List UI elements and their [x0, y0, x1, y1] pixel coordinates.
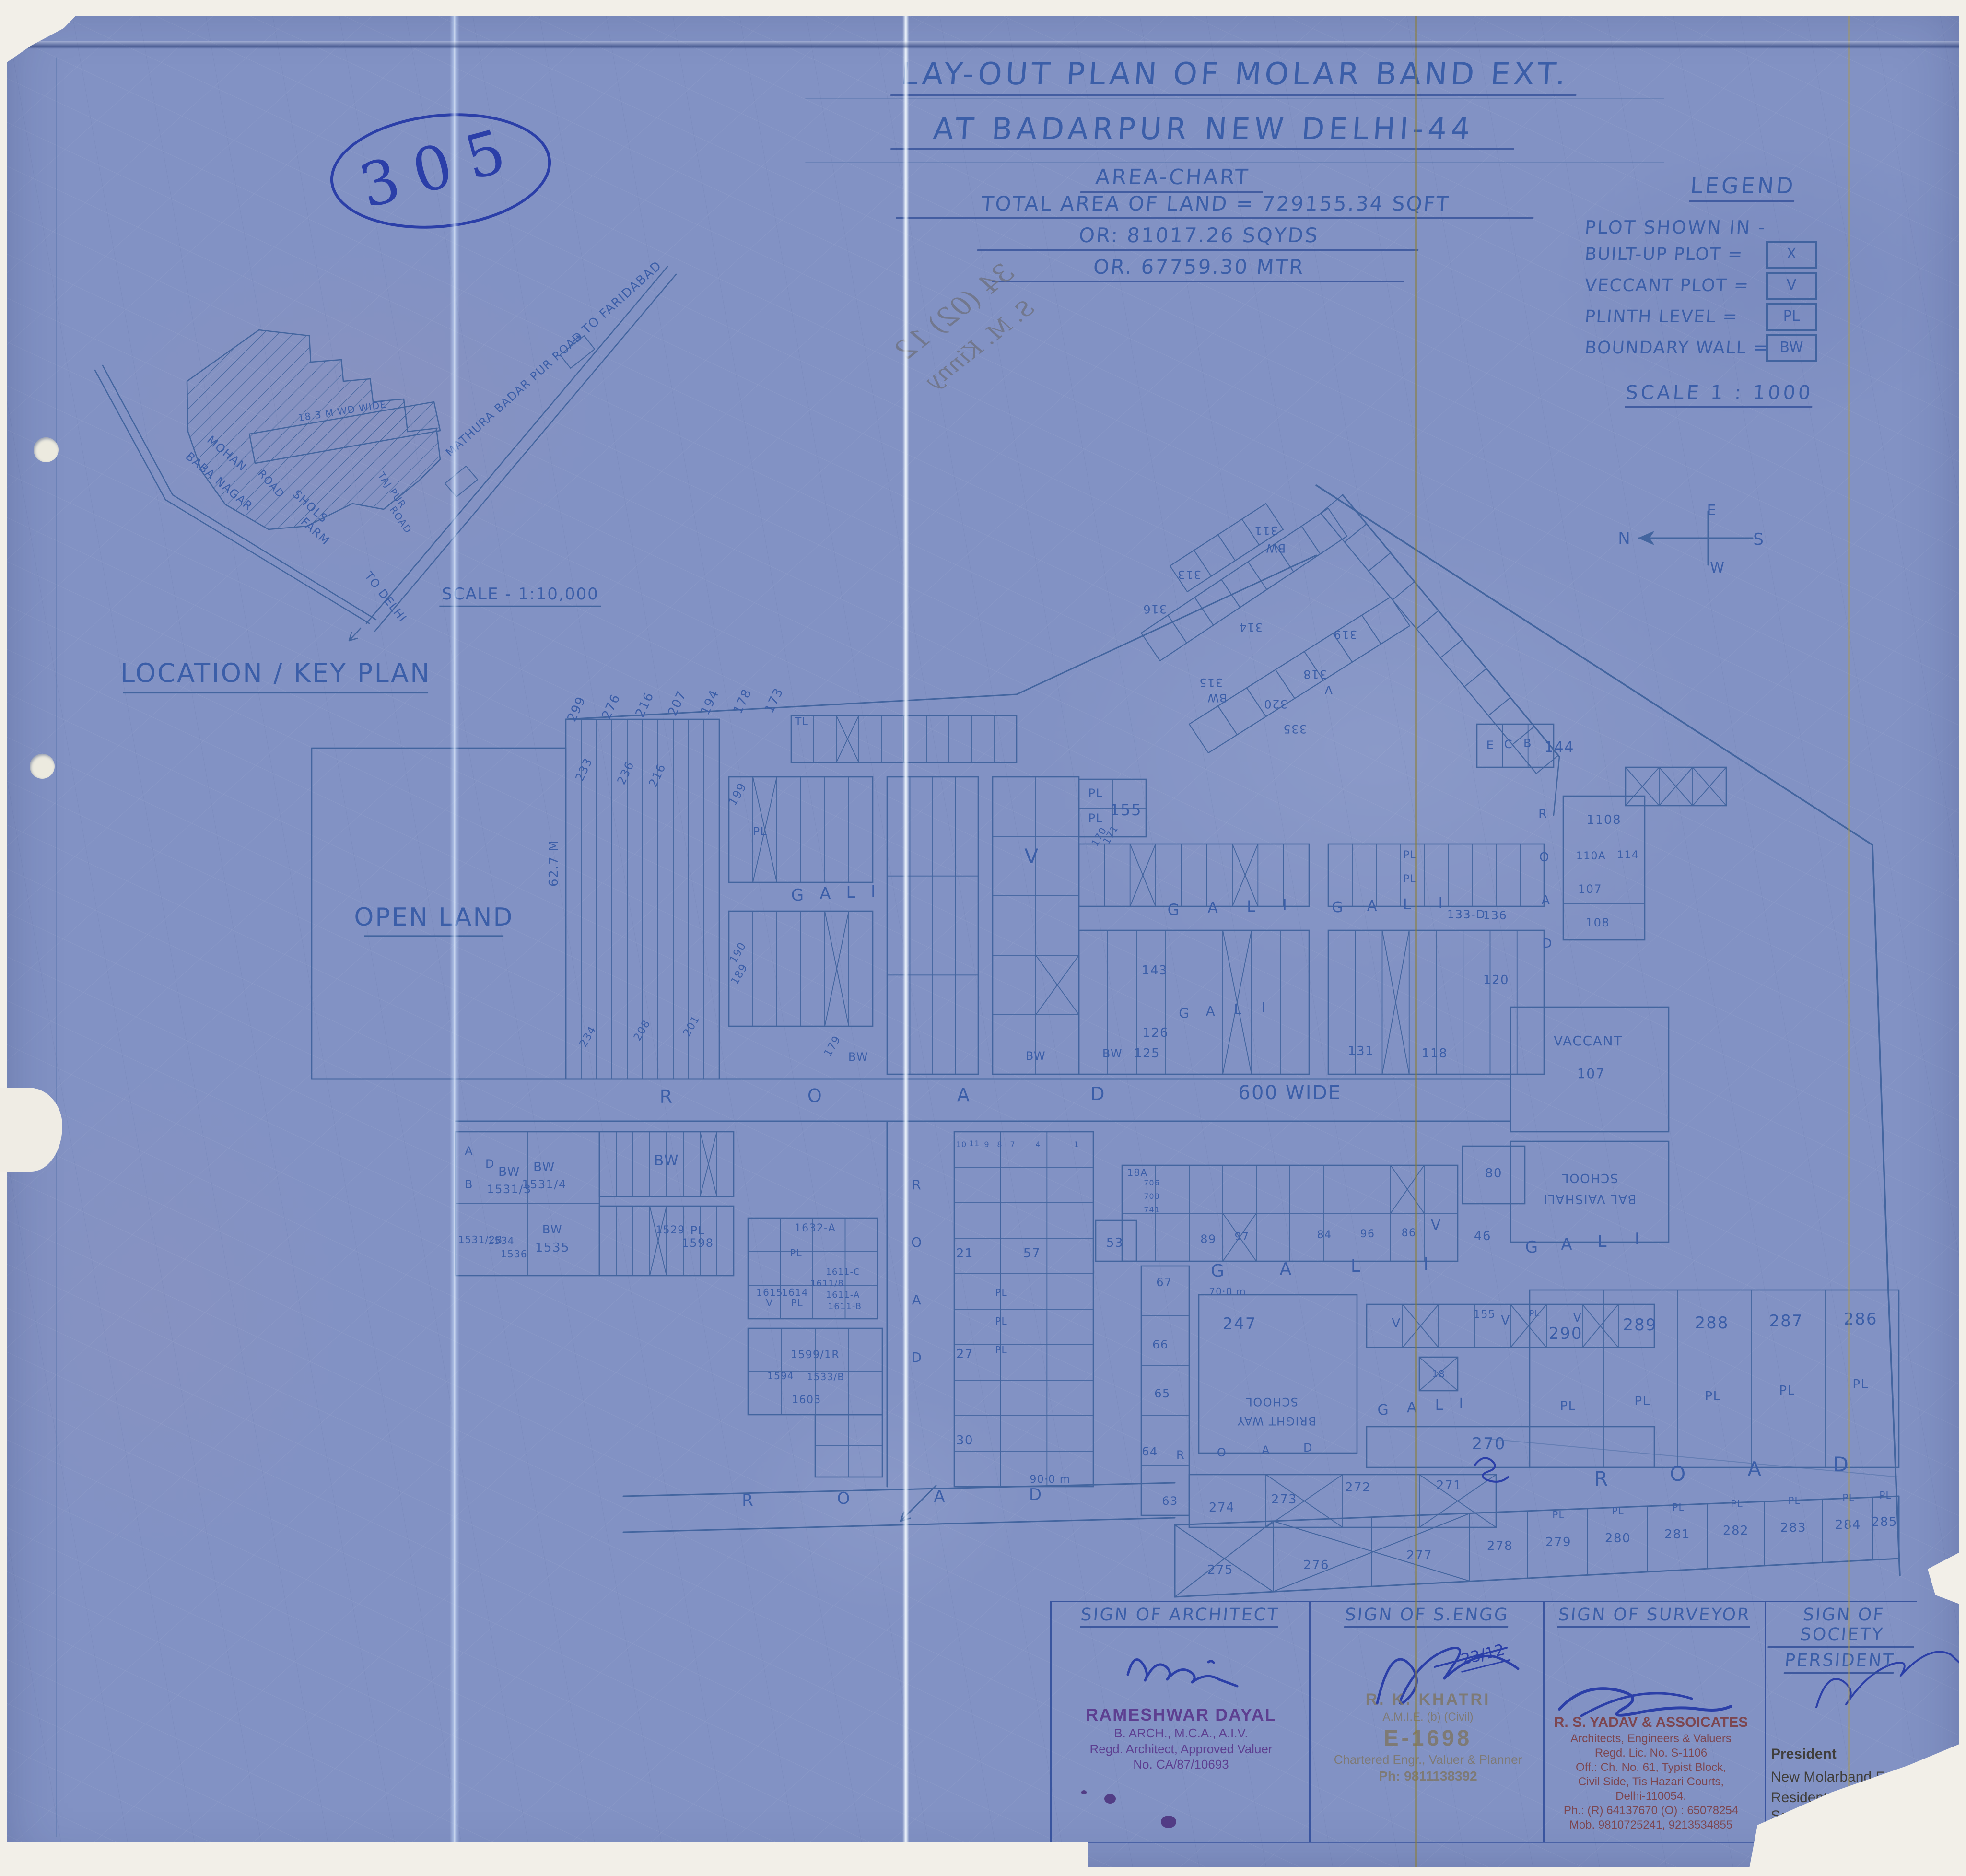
- ink-blob: [1161, 1816, 1176, 1828]
- svg-text:201: 201: [681, 1014, 702, 1039]
- svg-text:D: D: [1833, 1453, 1850, 1476]
- svg-text:194: 194: [698, 688, 722, 717]
- svg-text:D: D: [1029, 1485, 1042, 1504]
- svg-text:A: A: [1207, 899, 1219, 917]
- svg-text:272: 272: [1345, 1480, 1371, 1495]
- svg-text:PL: PL: [995, 1287, 1007, 1298]
- svg-text:O: O: [807, 1085, 823, 1106]
- svg-text:O: O: [1217, 1446, 1227, 1459]
- svg-text:E: E: [1707, 502, 1717, 519]
- svg-text:PL: PL: [1731, 1498, 1743, 1510]
- svg-text:80: 80: [1485, 1166, 1502, 1181]
- svg-text:1108: 1108: [1587, 813, 1621, 827]
- svg-text:287: 287: [1769, 1312, 1803, 1331]
- svg-text:BAL VAISHALI: BAL VAISHALI: [1543, 1192, 1637, 1206]
- svg-text:PL: PL: [690, 1224, 705, 1237]
- svg-text:600 WIDE: 600 WIDE: [1238, 1082, 1342, 1104]
- svg-text:PL: PL: [1852, 1377, 1868, 1392]
- svg-text:319: 319: [1333, 628, 1357, 641]
- svg-text:PL: PL: [1612, 1505, 1624, 1517]
- svg-text:PL: PL: [1788, 1495, 1801, 1506]
- svg-text:335: 335: [1283, 722, 1307, 736]
- svg-text:86: 86: [1402, 1227, 1416, 1239]
- architect-stamp: RAMESHWAR DAYAL B. ARCH., M.C.A., A.I.V.…: [1068, 1704, 1294, 1772]
- legend-symbol-plinth: PL: [1766, 303, 1817, 331]
- svg-text:BW: BW: [533, 1160, 555, 1174]
- svg-text:O: O: [1539, 850, 1550, 865]
- svg-text:PL: PL: [1879, 1489, 1892, 1501]
- svg-text:108: 108: [1586, 916, 1610, 929]
- svg-text:S: S: [1753, 530, 1765, 549]
- svg-text:V: V: [1024, 844, 1039, 868]
- svg-text:PL: PL: [1560, 1399, 1576, 1413]
- table-divider-3: [1765, 1602, 1766, 1842]
- svg-text:R: R: [1538, 807, 1548, 821]
- svg-text:O: O: [837, 1489, 851, 1508]
- svg-text:PL: PL: [995, 1315, 1007, 1327]
- svg-text:90·0 m: 90·0 m: [1030, 1474, 1070, 1486]
- svg-text:9: 9: [984, 1140, 989, 1149]
- svg-text:PL: PL: [1634, 1394, 1650, 1408]
- svg-text:R: R: [1176, 1448, 1185, 1462]
- svg-text:OPEN LAND: OPEN LAND: [354, 903, 514, 932]
- svg-text:120: 120: [1483, 973, 1509, 987]
- svg-text:136: 136: [1483, 909, 1507, 922]
- svg-text:TO DELHI: TO DELHI: [362, 569, 410, 624]
- svg-text:I: I: [1635, 1230, 1640, 1249]
- svg-text:208: 208: [632, 1018, 653, 1043]
- svg-text:1632-A: 1632-A: [795, 1222, 836, 1234]
- svg-text:BW: BW: [1207, 691, 1227, 704]
- svg-text:281: 281: [1664, 1527, 1690, 1542]
- legend-symbol-vacant: V: [1766, 272, 1817, 300]
- svg-text:286: 286: [1843, 1310, 1877, 1329]
- svg-text:V: V: [1324, 683, 1333, 696]
- svg-text:178: 178: [731, 687, 755, 716]
- svg-text:173: 173: [762, 686, 786, 715]
- svg-text:1611-A: 1611-A: [826, 1290, 860, 1300]
- svg-text:706: 706: [1144, 1178, 1160, 1187]
- svg-text:BW: BW: [654, 1152, 679, 1169]
- area-chart-total: TOTAL AREA OF LAND = 729155.34 SQFT: [896, 192, 1535, 219]
- svg-text:I: I: [1439, 895, 1444, 912]
- drawing-title-line2: AT BADARPUR NEW DELHI-44: [890, 111, 1517, 150]
- svg-text:R: R: [912, 1177, 922, 1193]
- svg-text:MATHURA BADAR PUR ROAD: MATHURA BADAR PUR ROAD: [443, 329, 585, 459]
- svg-text:I: I: [1424, 1255, 1430, 1274]
- svg-text:BW: BW: [1026, 1049, 1046, 1063]
- svg-text:46: 46: [1474, 1229, 1491, 1243]
- svg-text:BRIGHT WAY: BRIGHT WAY: [1237, 1414, 1316, 1428]
- svg-text:179: 179: [822, 1034, 843, 1059]
- svg-text:A: A: [1262, 1443, 1270, 1457]
- svg-text:I: I: [1282, 896, 1287, 914]
- svg-text:SCHOOL: SCHOOL: [1245, 1395, 1298, 1408]
- svg-text:A: A: [1747, 1457, 1762, 1481]
- svg-text:1614: 1614: [782, 1287, 808, 1298]
- svg-text:SCHOOL: SCHOOL: [1561, 1171, 1618, 1185]
- svg-text:10: 10: [956, 1140, 967, 1149]
- svg-text:207: 207: [666, 689, 690, 718]
- svg-text:1529: 1529: [655, 1224, 685, 1236]
- svg-text:143: 143: [1142, 963, 1168, 978]
- svg-text:189: 189: [729, 962, 750, 987]
- svg-text:57: 57: [1023, 1246, 1041, 1261]
- svg-text:V: V: [766, 1297, 773, 1309]
- legend-item-builtup: BUILT-UP PLOT =: [1584, 245, 1744, 264]
- svg-text:62.7 M: 62.7 M: [547, 840, 561, 887]
- legend-item-vacant: VECCANT PLOT =: [1584, 276, 1750, 295]
- svg-text:L: L: [1351, 1256, 1361, 1276]
- svg-text:PL: PL: [1705, 1389, 1720, 1404]
- svg-text:A: A: [1561, 1235, 1573, 1254]
- svg-text:O: O: [1670, 1462, 1687, 1486]
- svg-text:D: D: [1303, 1441, 1313, 1454]
- svg-text:PL: PL: [1088, 786, 1103, 800]
- svg-text:190: 190: [727, 940, 749, 965]
- svg-text:316: 316: [1143, 602, 1167, 616]
- svg-text:A: A: [465, 1144, 473, 1158]
- svg-text:67: 67: [1156, 1276, 1172, 1289]
- svg-text:279: 279: [1545, 1535, 1571, 1549]
- svg-text:E: E: [1486, 739, 1495, 752]
- svg-text:A: A: [1280, 1259, 1293, 1279]
- svg-text:G: G: [1377, 1402, 1389, 1419]
- svg-text:155: 155: [1110, 801, 1142, 819]
- svg-text:V: V: [1501, 1313, 1510, 1328]
- svg-text:84: 84: [1317, 1229, 1332, 1241]
- svg-text:216: 216: [646, 762, 668, 789]
- svg-text:280: 280: [1605, 1531, 1631, 1546]
- legend-symbol-builtup: X: [1766, 241, 1817, 269]
- svg-text:A: A: [1367, 898, 1378, 915]
- svg-text:234: 234: [577, 1024, 599, 1049]
- svg-text:A: A: [1541, 893, 1550, 908]
- svg-text:288: 288: [1695, 1313, 1729, 1333]
- svg-text:63: 63: [1162, 1494, 1178, 1508]
- svg-text:741: 741: [1144, 1205, 1160, 1214]
- ink-blob: [1104, 1794, 1116, 1804]
- svg-text:131: 131: [1348, 1044, 1374, 1058]
- svg-text:G: G: [1211, 1261, 1225, 1281]
- svg-text:247: 247: [1222, 1314, 1256, 1334]
- svg-text:708: 708: [1144, 1192, 1160, 1201]
- svg-text:L: L: [1403, 896, 1412, 913]
- svg-text:L: L: [1435, 1397, 1444, 1414]
- svg-text:A: A: [957, 1084, 971, 1105]
- svg-text:8: 8: [997, 1140, 1002, 1149]
- svg-text:1611/8: 1611/8: [810, 1278, 844, 1289]
- legend-item-plinth: PLINTH LEVEL =: [1584, 307, 1739, 327]
- svg-text:107: 107: [1577, 1066, 1605, 1081]
- svg-text:TL: TL: [795, 716, 808, 728]
- svg-text:1615: 1615: [756, 1287, 783, 1298]
- svg-text:G: G: [1525, 1238, 1539, 1257]
- svg-text:70·0 m: 70·0 m: [1209, 1286, 1246, 1297]
- svg-text:133-D: 133-D: [1447, 908, 1486, 921]
- svg-text:PL: PL: [1842, 1492, 1855, 1503]
- svg-text:V: V: [1573, 1311, 1582, 1325]
- svg-text:BW: BW: [542, 1223, 562, 1236]
- svg-text:18: 18: [1432, 1368, 1445, 1380]
- svg-text:1611-B: 1611-B: [828, 1301, 862, 1312]
- svg-text:273: 273: [1271, 1492, 1297, 1507]
- svg-text:114: 114: [1617, 849, 1639, 861]
- engineer-stamp: R. K. KHATRI A.M.I.E. (b) (Civil) E-1698…: [1322, 1689, 1533, 1784]
- svg-text:PL: PL: [1552, 1509, 1565, 1521]
- svg-text:O: O: [911, 1234, 923, 1250]
- svg-text:155: 155: [1474, 1309, 1496, 1321]
- svg-text:BW: BW: [1265, 541, 1286, 555]
- svg-text:G: G: [1168, 901, 1181, 919]
- header-sign-architect: SIGN OF ARCHITECT: [1053, 1605, 1307, 1628]
- area-chart-heading: AREA-CHART: [1080, 165, 1264, 193]
- svg-text:I: I: [1459, 1395, 1464, 1412]
- svg-text:BW: BW: [498, 1165, 520, 1179]
- svg-text:275: 275: [1207, 1563, 1233, 1577]
- svg-text:L: L: [1598, 1232, 1608, 1251]
- svg-text:276: 276: [1303, 1558, 1329, 1572]
- svg-text:PL: PL: [1779, 1384, 1795, 1398]
- svg-text:VACCANT: VACCANT: [1554, 1033, 1623, 1049]
- svg-text:1: 1: [1074, 1140, 1079, 1149]
- svg-text:PL: PL: [1403, 849, 1416, 861]
- svg-text:BW: BW: [1102, 1047, 1123, 1060]
- svg-text:PL: PL: [1672, 1501, 1685, 1513]
- svg-text:D: D: [1090, 1083, 1106, 1104]
- svg-text:L: L: [1234, 1001, 1242, 1017]
- header-sign-president: SIGN OF SOCIETY PERSIDENT: [1766, 1605, 1918, 1674]
- svg-text:236: 236: [614, 759, 637, 786]
- svg-text:233: 233: [573, 756, 595, 783]
- svg-text:66: 66: [1152, 1338, 1168, 1351]
- legend-intro: PLOT SHOWN IN -: [1584, 217, 1767, 238]
- svg-text:PL: PL: [753, 825, 768, 838]
- svg-text:125: 125: [1134, 1046, 1160, 1061]
- svg-text:118: 118: [1422, 1046, 1448, 1061]
- surveyor-stamp: R. S. YADAV & ASSOICATES Architects, Eng…: [1548, 1713, 1754, 1832]
- svg-text:V: V: [1431, 1217, 1441, 1234]
- svg-text:A: A: [1407, 1399, 1417, 1416]
- svg-text:R: R: [1594, 1467, 1609, 1490]
- svg-text:1594: 1594: [767, 1370, 794, 1382]
- table-divider-2: [1543, 1602, 1545, 1842]
- svg-text:PL: PL: [1403, 873, 1416, 885]
- svg-text:97: 97: [1235, 1231, 1250, 1243]
- svg-text:144: 144: [1545, 739, 1575, 756]
- svg-text:7: 7: [1010, 1140, 1015, 1149]
- header-sign-surveyor: SIGN OF SURVEYOR: [1545, 1605, 1763, 1628]
- svg-text:283: 283: [1780, 1521, 1806, 1535]
- svg-text:1611-C: 1611-C: [826, 1267, 860, 1277]
- svg-text:282: 282: [1723, 1524, 1749, 1538]
- svg-text:1598: 1598: [682, 1236, 714, 1250]
- header-sign-engineer: SIGN OF S.ENGG: [1312, 1605, 1542, 1628]
- svg-text:PL: PL: [995, 1344, 1007, 1356]
- svg-text:285: 285: [1872, 1515, 1897, 1529]
- svg-text:D: D: [1542, 937, 1553, 951]
- legend-symbol-boundary: BW: [1766, 334, 1817, 362]
- svg-text:→ TO FARIDABAD: → TO FARIDABAD: [567, 258, 665, 348]
- legend-heading: LEGEND: [1689, 173, 1797, 202]
- svg-text:G: G: [791, 886, 805, 905]
- svg-text:64: 64: [1142, 1445, 1158, 1458]
- svg-text:27: 27: [956, 1347, 973, 1361]
- svg-text:1536: 1536: [501, 1248, 527, 1260]
- signature-date: 23/12: [1456, 1640, 1510, 1673]
- svg-text:270: 270: [1472, 1434, 1506, 1454]
- svg-text:L: L: [846, 883, 856, 902]
- svg-text:320: 320: [1264, 697, 1287, 711]
- blueprint-sheet: → TO FARIDABADMATHURA BADAR PUR ROADMOHA…: [0, 0, 1966, 1876]
- signature-table: SIGN OF ARCHITECT SIGN OF S.ENGG SIGN OF…: [1050, 1601, 1917, 1843]
- svg-text:96: 96: [1360, 1228, 1375, 1240]
- svg-text:1531/4: 1531/4: [522, 1178, 566, 1191]
- svg-text:L: L: [1247, 897, 1256, 915]
- svg-text:89: 89: [1200, 1232, 1216, 1246]
- svg-text:1535: 1535: [535, 1241, 570, 1255]
- svg-text:G: G: [1332, 899, 1344, 916]
- svg-text:R: R: [660, 1086, 674, 1107]
- svg-text:18A: 18A: [1127, 1167, 1148, 1178]
- svg-text:4: 4: [1035, 1140, 1041, 1149]
- legend: LEGEND PLOT SHOWN IN - BUILT-UP PLOT = X…: [1585, 173, 1911, 412]
- svg-text:PL: PL: [791, 1297, 803, 1309]
- svg-text:SCALE - 1:10,000: SCALE - 1:10,000: [442, 585, 599, 604]
- svg-text:PL: PL: [790, 1247, 802, 1259]
- svg-text:D: D: [911, 1349, 922, 1365]
- legend-item-boundary: BOUNDARY WALL =: [1584, 338, 1769, 358]
- svg-text:N: N: [1618, 529, 1631, 548]
- svg-text:W: W: [1710, 560, 1725, 576]
- svg-text:126: 126: [1143, 1026, 1169, 1040]
- svg-text:289: 289: [1623, 1315, 1657, 1335]
- svg-text:171: 171: [1100, 823, 1121, 846]
- svg-text:313: 313: [1177, 568, 1201, 581]
- svg-text:LOCATION / KEY PLAN: LOCATION / KEY PLAN: [120, 658, 431, 688]
- svg-text:1533/B: 1533/B: [807, 1371, 845, 1383]
- svg-text:107: 107: [1578, 882, 1602, 896]
- svg-text:277: 277: [1406, 1548, 1432, 1563]
- svg-text:53: 53: [1106, 1236, 1123, 1250]
- svg-text:284: 284: [1835, 1518, 1861, 1532]
- svg-text:V: V: [1392, 1316, 1401, 1331]
- svg-text:110A: 110A: [1576, 850, 1606, 862]
- svg-text:318: 318: [1303, 668, 1327, 681]
- svg-text:65: 65: [1154, 1387, 1170, 1400]
- svg-text:A: A: [819, 884, 831, 903]
- svg-text:R: R: [742, 1491, 754, 1510]
- svg-text:I: I: [871, 882, 877, 901]
- svg-text:I: I: [1262, 999, 1266, 1015]
- legend-scale: SCALE 1 : 1000: [1625, 382, 1814, 408]
- svg-text:271: 271: [1436, 1478, 1462, 1493]
- svg-text:A: A: [934, 1487, 946, 1506]
- svg-text:21: 21: [956, 1246, 973, 1261]
- svg-text:314: 314: [1239, 621, 1263, 634]
- president-stamp: President New Molarband Extn. Residental…: [1771, 1745, 1915, 1825]
- svg-text:G: G: [1179, 1005, 1190, 1021]
- svg-text:278: 278: [1487, 1539, 1513, 1553]
- svg-text:311: 311: [1254, 524, 1278, 537]
- svg-text:C: C: [1504, 738, 1513, 751]
- svg-text:290: 290: [1548, 1324, 1582, 1343]
- svg-text:274: 274: [1209, 1501, 1235, 1515]
- drawing-title-line1: LAY-OUT PLAN OF MOLAR BAND EXT.: [890, 57, 1579, 96]
- svg-text:BW: BW: [848, 1050, 868, 1064]
- table-divider-1: [1309, 1602, 1311, 1842]
- svg-text:PL: PL: [1529, 1309, 1540, 1319]
- svg-text:1603: 1603: [792, 1394, 821, 1406]
- svg-text:30: 30: [956, 1433, 973, 1448]
- svg-text:A: A: [1206, 1003, 1216, 1019]
- svg-text:PL: PL: [1088, 811, 1103, 825]
- svg-text:315: 315: [1199, 676, 1223, 689]
- svg-text:11: 11: [969, 1139, 980, 1148]
- svg-text:A: A: [912, 1292, 922, 1308]
- ink-blob: [1081, 1790, 1087, 1794]
- svg-text:B: B: [1523, 737, 1532, 750]
- svg-text:1599/1R: 1599/1R: [791, 1349, 840, 1361]
- svg-text:D: D: [485, 1157, 495, 1171]
- svg-text:B: B: [465, 1178, 473, 1191]
- svg-text:1534: 1534: [488, 1235, 515, 1246]
